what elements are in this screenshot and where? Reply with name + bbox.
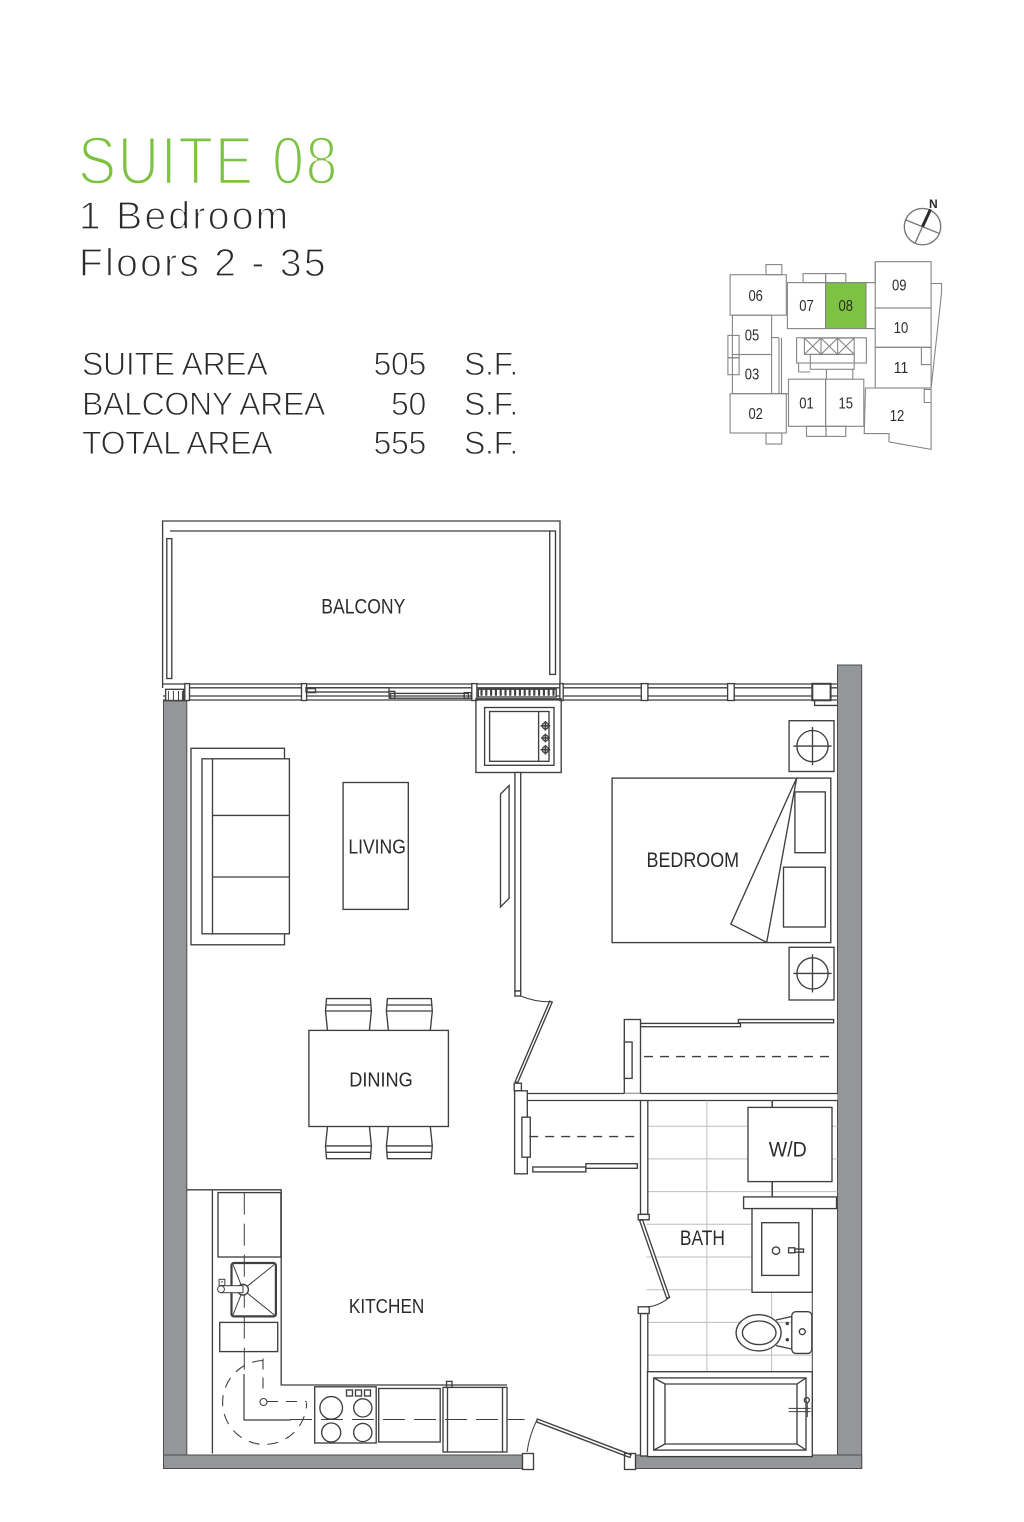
svg-text:10: 10 <box>894 320 909 337</box>
svg-text:15: 15 <box>839 395 854 412</box>
svg-text:03: 03 <box>745 367 760 384</box>
svg-text:BALCONY: BALCONY <box>321 595 405 618</box>
svg-text:BEDROOM: BEDROOM <box>647 848 740 872</box>
svg-text:N: N <box>929 197 938 211</box>
svg-text:W/D: W/D <box>769 1137 807 1161</box>
svg-text:05: 05 <box>745 328 760 345</box>
svg-text:11: 11 <box>894 360 909 377</box>
svg-text:07: 07 <box>799 298 814 315</box>
svg-text:KITCHEN: KITCHEN <box>349 1295 425 1318</box>
svg-text:08: 08 <box>839 298 854 315</box>
svg-text:09: 09 <box>892 278 907 295</box>
svg-text:BATH: BATH <box>680 1226 725 1250</box>
svg-text:01: 01 <box>799 395 814 412</box>
svg-text:12: 12 <box>890 408 905 425</box>
svg-text:02: 02 <box>748 406 763 423</box>
svg-text:06: 06 <box>748 288 763 305</box>
svg-text:DINING: DINING <box>349 1068 413 1091</box>
svg-text:LIVING: LIVING <box>348 836 406 858</box>
